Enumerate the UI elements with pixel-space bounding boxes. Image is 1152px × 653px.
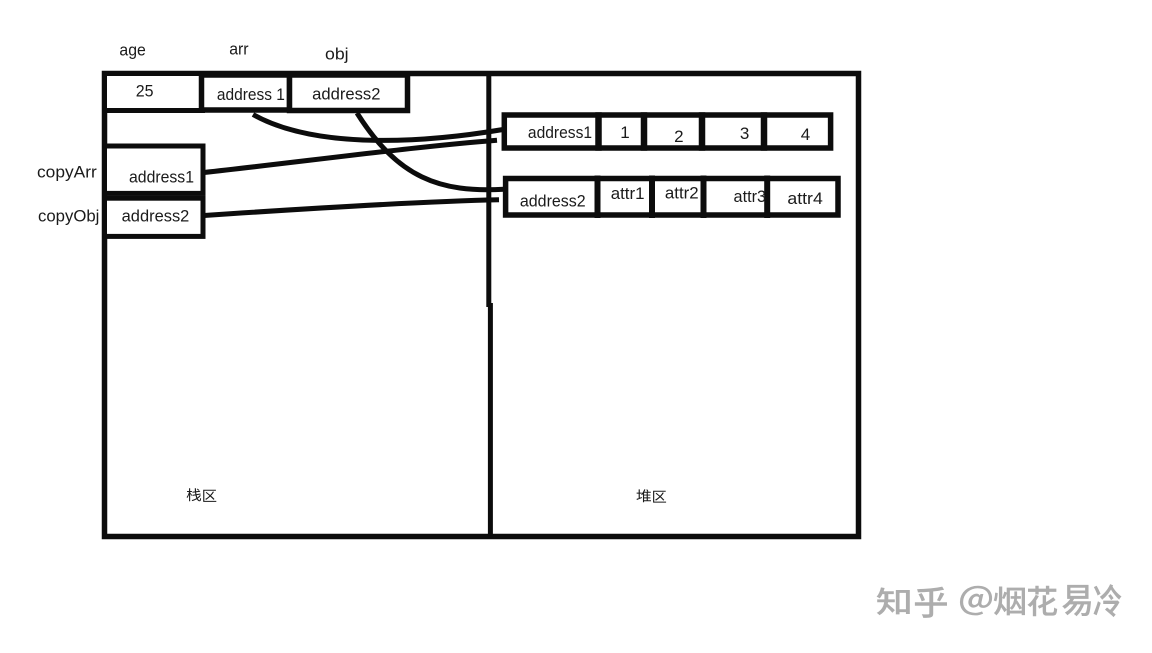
svg-text:copyArr: copyArr — [37, 163, 97, 182]
svg-text:25: 25 — [136, 82, 154, 101]
svg-text:attr4: attr4 — [787, 189, 822, 208]
svg-text:address2: address2 — [312, 85, 380, 104]
svg-text:address2: address2 — [520, 192, 586, 211]
svg-text:attr3: attr3 — [734, 187, 767, 206]
svg-text:attr2: attr2 — [665, 184, 699, 203]
svg-text:4: 4 — [801, 125, 810, 144]
svg-text:1: 1 — [620, 123, 629, 142]
svg-text:copyObj: copyObj — [38, 207, 99, 226]
svg-text:address2: address2 — [122, 207, 190, 226]
svg-text:2: 2 — [674, 127, 683, 146]
svg-text:arr: arr — [229, 40, 249, 59]
svg-text:address1: address1 — [528, 123, 592, 142]
svg-text:age: age — [119, 41, 145, 60]
svg-text:obj: obj — [325, 45, 349, 64]
svg-text:address 1: address 1 — [217, 85, 285, 104]
svg-text:address1: address1 — [129, 168, 194, 187]
svg-text:attr1: attr1 — [611, 184, 645, 203]
svg-text:3: 3 — [740, 124, 749, 143]
